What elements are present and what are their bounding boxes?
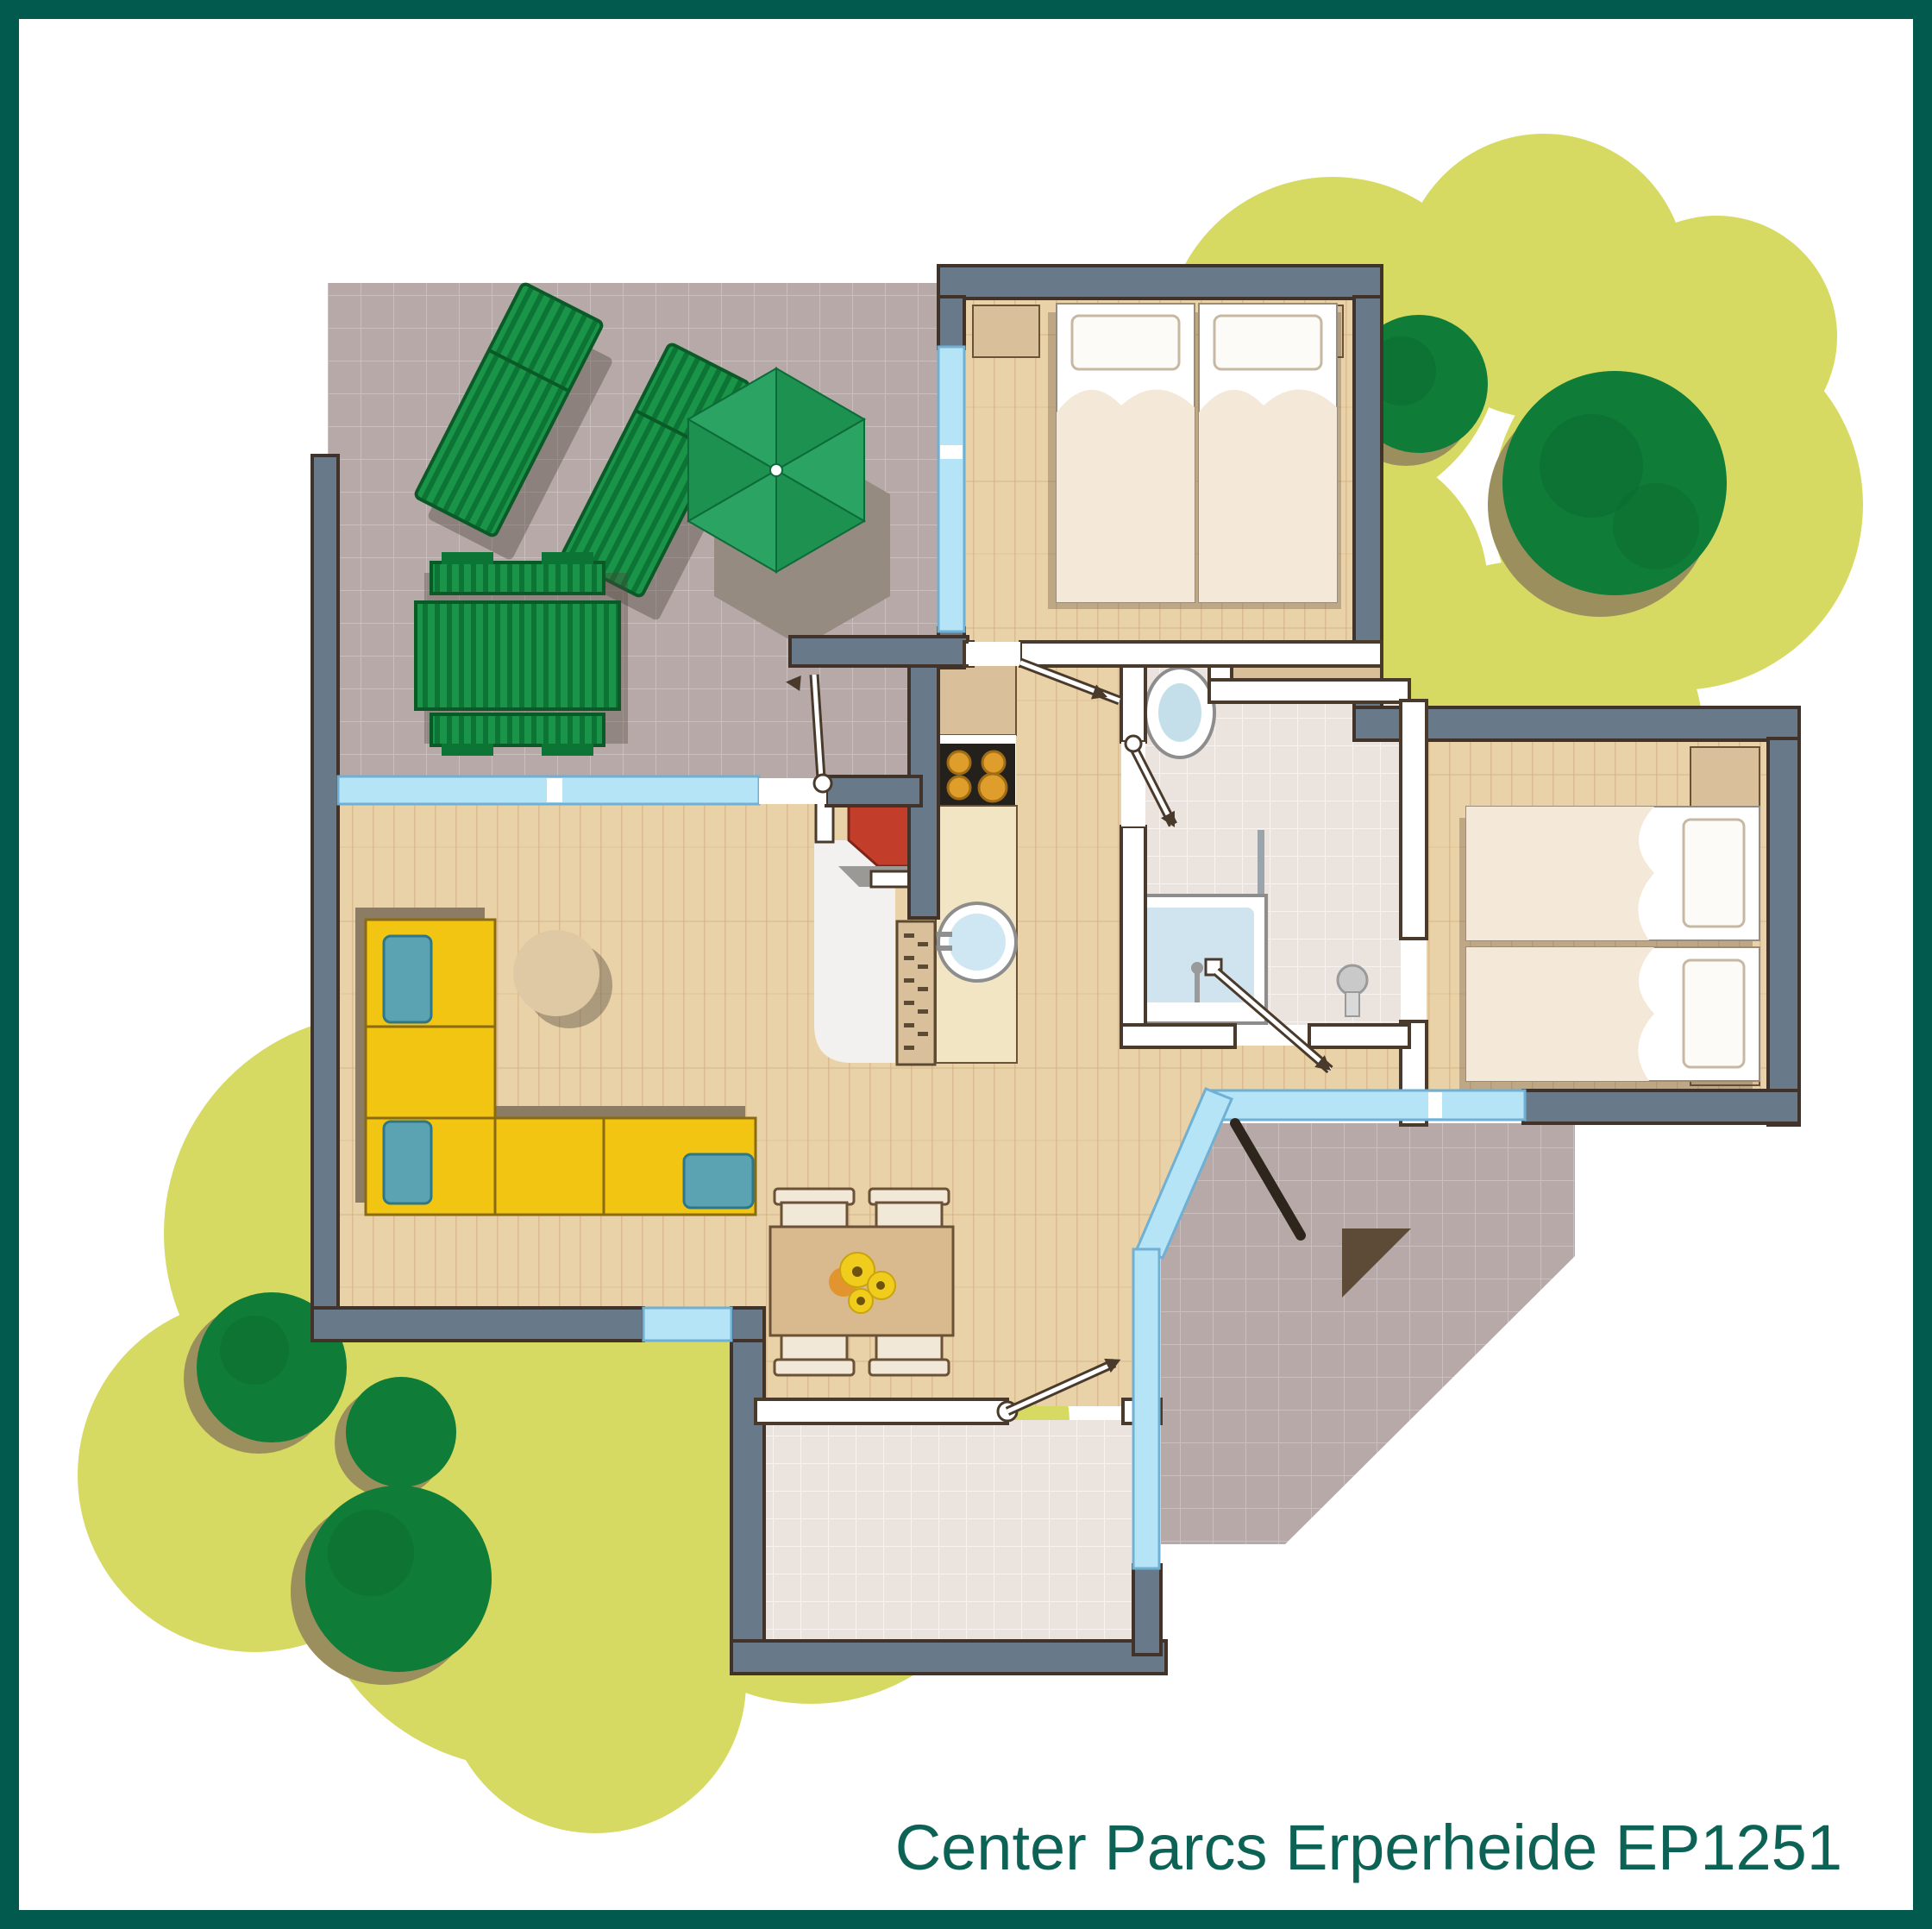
sofa-cushion [684, 1154, 753, 1208]
floor-plan-canvas [0, 0, 1932, 1929]
sofa-cushion [384, 1122, 431, 1203]
pillow [1072, 316, 1179, 369]
chair [876, 1334, 942, 1361]
bathtub [1128, 895, 1266, 1023]
twin-bed [1466, 807, 1759, 940]
twin-bed [1466, 947, 1759, 1081]
floor-plan-page: Center Parcs Erperheide EP1251 [0, 0, 1932, 1929]
radiator [897, 921, 935, 1065]
chair [869, 1360, 949, 1375]
nightstand [973, 305, 1039, 357]
nightstand [1690, 747, 1759, 814]
sofa-cushion [384, 936, 431, 1022]
bedroom1-window [938, 347, 964, 631]
toilet [1145, 668, 1214, 757]
pillow [1684, 960, 1744, 1067]
pillow [1684, 820, 1744, 927]
entrance-hall-window [1133, 1249, 1159, 1568]
kitchen-cabinet [937, 664, 1016, 735]
hall-south-window [1206, 1090, 1525, 1120]
picnic-table [416, 552, 628, 756]
porch-floor [1161, 1123, 1575, 1544]
entrance-hall-floor [762, 1420, 1135, 1641]
caption: Center Parcs Erperheide EP1251 [895, 1811, 1842, 1884]
living-room-south-window [643, 1308, 731, 1341]
pillow [1214, 316, 1321, 369]
chair [775, 1360, 854, 1375]
stove-4-burner [939, 744, 1015, 806]
chair [781, 1334, 847, 1361]
